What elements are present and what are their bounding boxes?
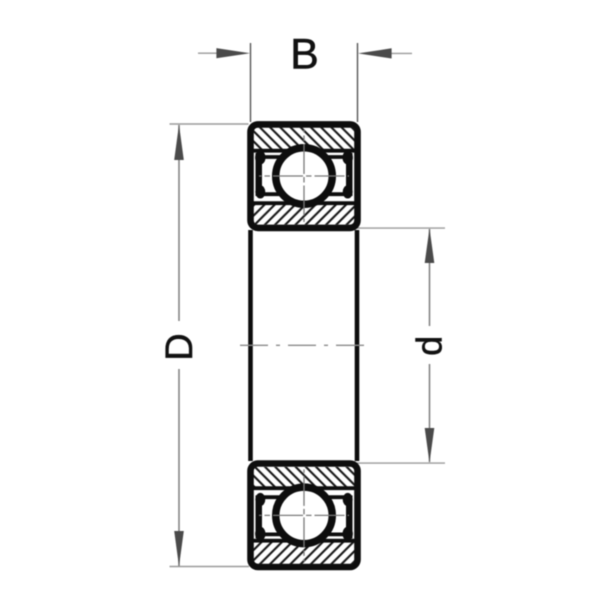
svg-text:B: B — [290, 31, 319, 79]
svg-text:d: d — [409, 336, 450, 356]
svg-text:D: D — [159, 333, 201, 360]
